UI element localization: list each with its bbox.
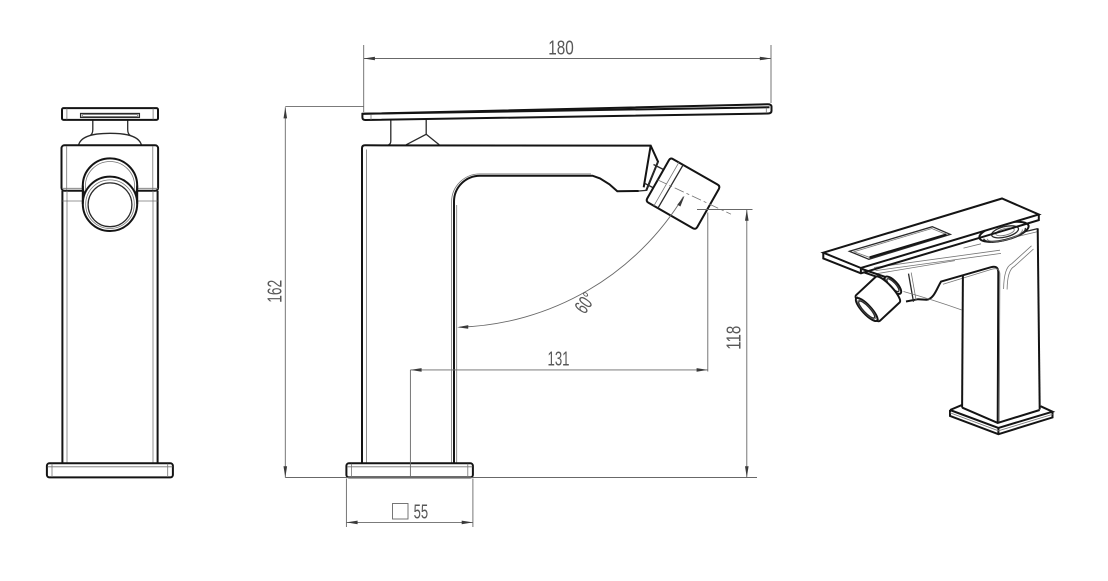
svg-text:131: 131 [548,349,570,371]
svg-text:118: 118 [724,326,746,350]
svg-text:180: 180 [548,38,574,60]
svg-text:55: 55 [414,501,429,523]
svg-text:162: 162 [265,280,287,303]
